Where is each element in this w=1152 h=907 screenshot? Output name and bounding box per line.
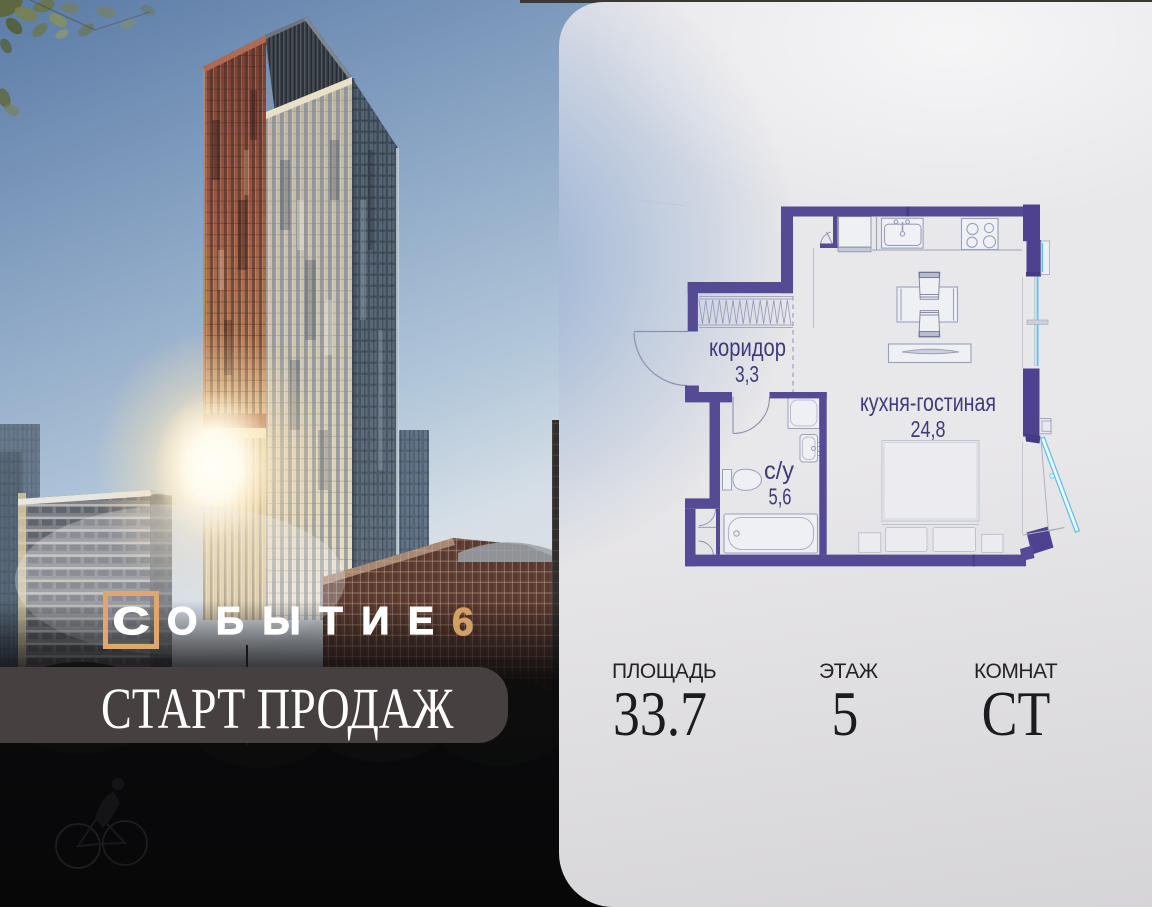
svg-text:24,8: 24,8 — [911, 416, 946, 442]
svg-text:с/у: с/у — [764, 457, 794, 485]
svg-text:коридор: коридор — [709, 334, 786, 362]
svg-text:3,3: 3,3 — [735, 361, 759, 387]
svg-text:кухня-гостиная: кухня-гостиная — [860, 389, 996, 417]
svg-text:5,6: 5,6 — [769, 484, 792, 510]
